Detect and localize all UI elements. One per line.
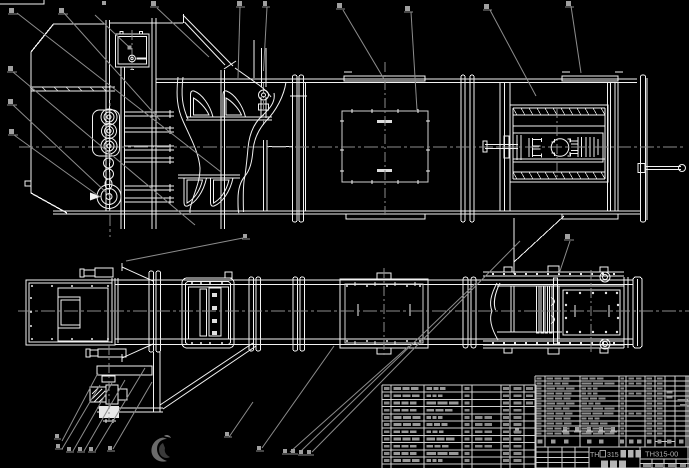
svg-text:TH315-00: TH315-00	[645, 450, 678, 459]
svg-text:315: 315	[607, 452, 619, 459]
svg-text:TH: TH	[590, 452, 599, 459]
